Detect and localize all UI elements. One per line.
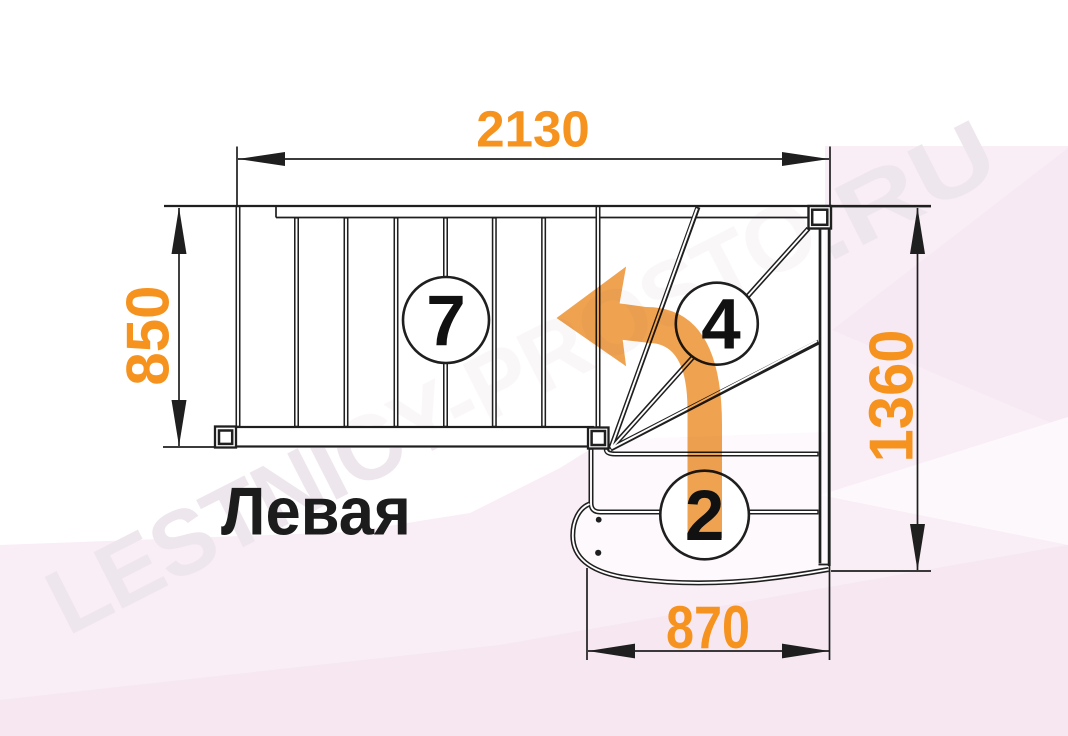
svg-text:4: 4 <box>701 286 741 365</box>
svg-text:2: 2 <box>685 477 725 556</box>
svg-text:850: 850 <box>114 285 181 385</box>
svg-text:870: 870 <box>666 594 750 661</box>
svg-text:2130: 2130 <box>476 101 589 158</box>
svg-text:1360: 1360 <box>858 330 927 463</box>
svg-text:Левая: Левая <box>221 475 411 550</box>
svg-text:7: 7 <box>426 282 466 361</box>
